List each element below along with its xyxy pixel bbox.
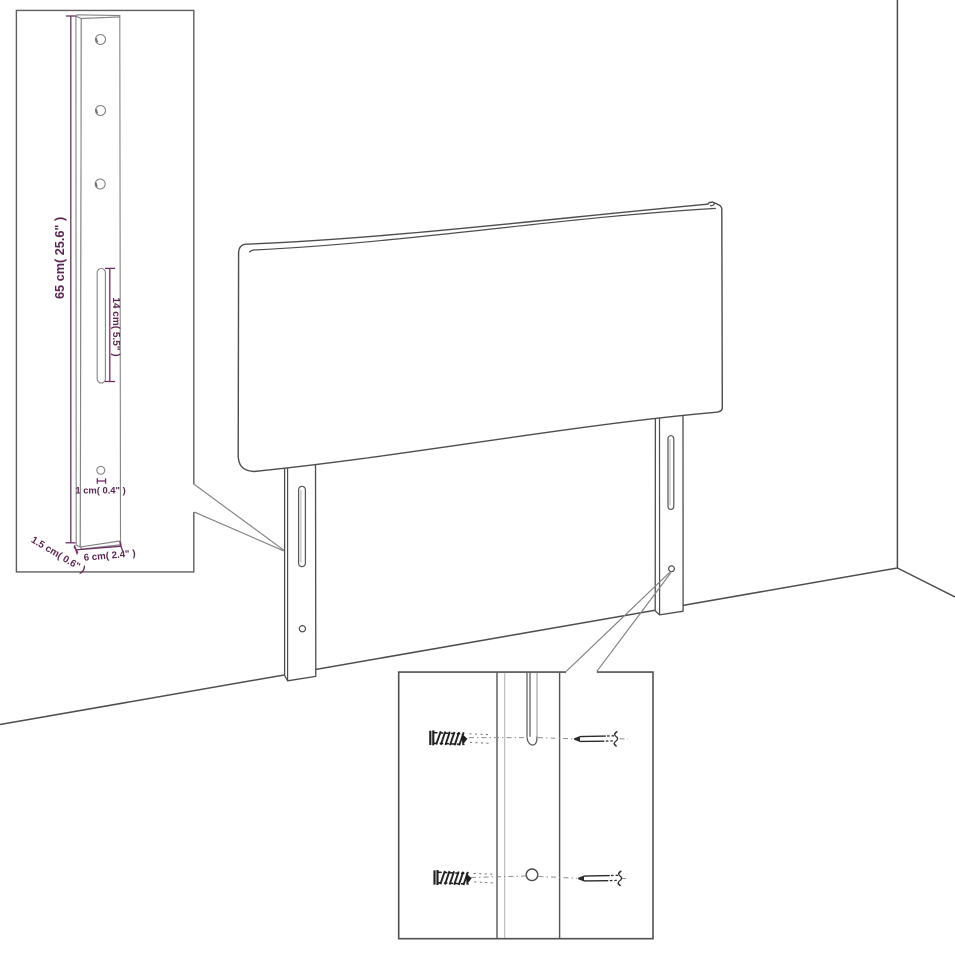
- svg-text:1 cm( 0.4" ): 1 cm( 0.4" ): [75, 485, 125, 496]
- svg-text:65 cm( 25.6" ): 65 cm( 25.6" ): [53, 217, 67, 299]
- svg-text:14 cm( 5.5" ): 14 cm( 5.5" ): [110, 297, 121, 356]
